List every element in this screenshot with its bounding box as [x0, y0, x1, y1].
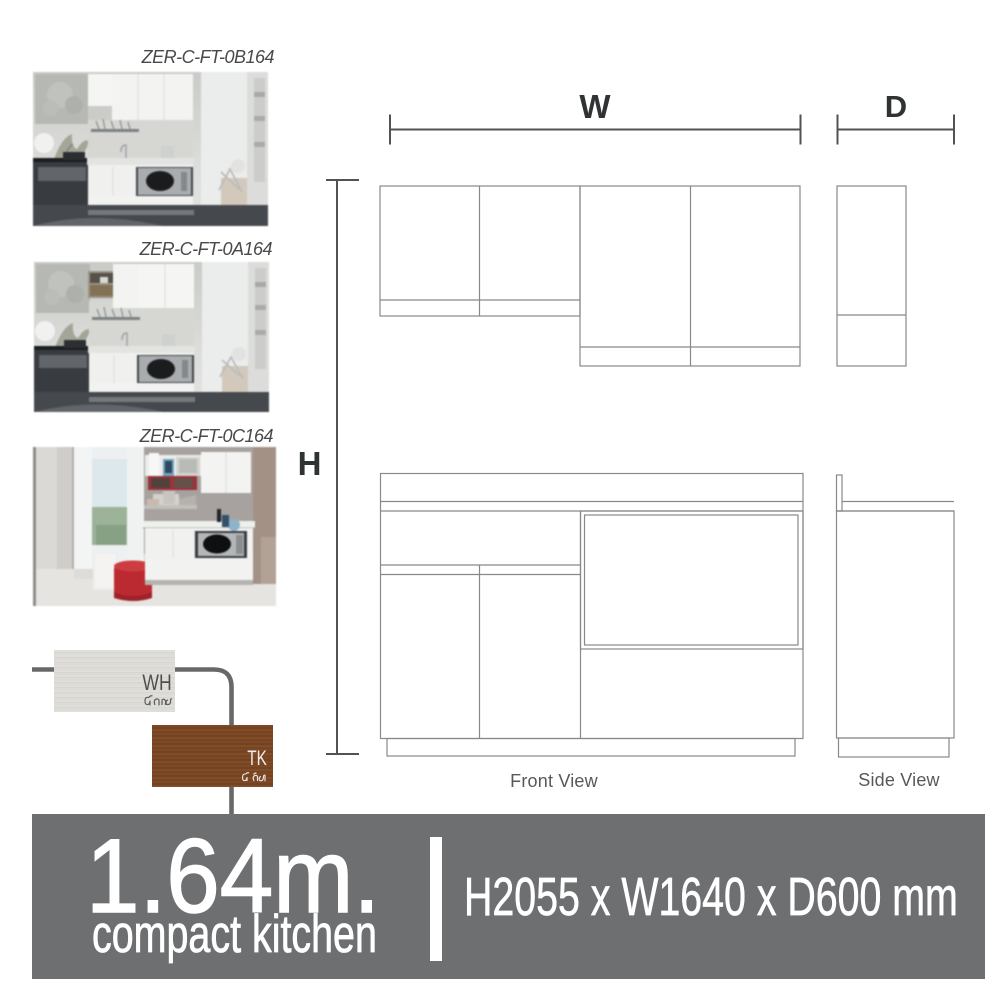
svg-text:H: H	[298, 445, 322, 482]
svg-text:D: D	[885, 89, 907, 124]
svg-text:Side View: Side View	[858, 770, 940, 790]
svg-text:Front View: Front View	[510, 771, 599, 791]
svg-text:W: W	[579, 88, 611, 125]
